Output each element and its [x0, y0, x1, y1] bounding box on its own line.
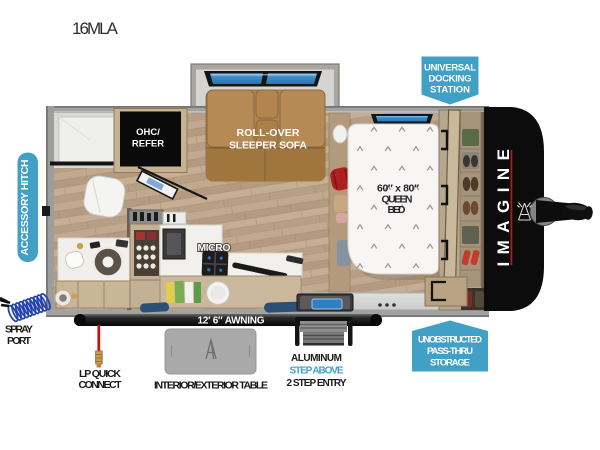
- svg-text:PORT: PORT: [7, 335, 32, 347]
- svg-text:SPRAY: SPRAY: [5, 324, 33, 336]
- svg-text:STATION: STATION: [430, 85, 470, 96]
- svg-text:UNOBSTRUCTED: UNOBSTRUCTED: [418, 335, 482, 346]
- svg-text:STORAGE: STORAGE: [430, 358, 470, 369]
- svg-text:INTERIOR/EXTERIOR TABLE: INTERIOR/EXTERIOR TABLE: [154, 380, 268, 392]
- svg-text:ALUMINUM: ALUMINUM: [291, 353, 342, 364]
- svg-text:BED: BED: [388, 204, 406, 216]
- svg-text:SLEEPER SOFA: SLEEPER SOFA: [229, 140, 307, 152]
- svg-text:UNIVERSAL: UNIVERSAL: [424, 63, 476, 74]
- svg-text:12′ 6″ AWNING: 12′ 6″ AWNING: [198, 316, 265, 327]
- svg-text:REFER: REFER: [132, 139, 164, 150]
- svg-text:2 STEP ENTRY: 2 STEP ENTRY: [287, 378, 347, 389]
- svg-text:PASS-THRU: PASS-THRU: [427, 346, 473, 357]
- svg-text:CONNECT: CONNECT: [79, 379, 123, 391]
- svg-text:ACCESSORY HITCH: ACCESSORY HITCH: [19, 160, 31, 256]
- svg-text:16MLA: 16MLA: [72, 19, 119, 38]
- svg-text:ROLL-OVER: ROLL-OVER: [237, 127, 300, 139]
- svg-text:DOCKING: DOCKING: [429, 74, 472, 85]
- svg-text:OHC/: OHC/: [136, 127, 160, 138]
- svg-text:STEP ABOVE: STEP ABOVE: [290, 366, 344, 377]
